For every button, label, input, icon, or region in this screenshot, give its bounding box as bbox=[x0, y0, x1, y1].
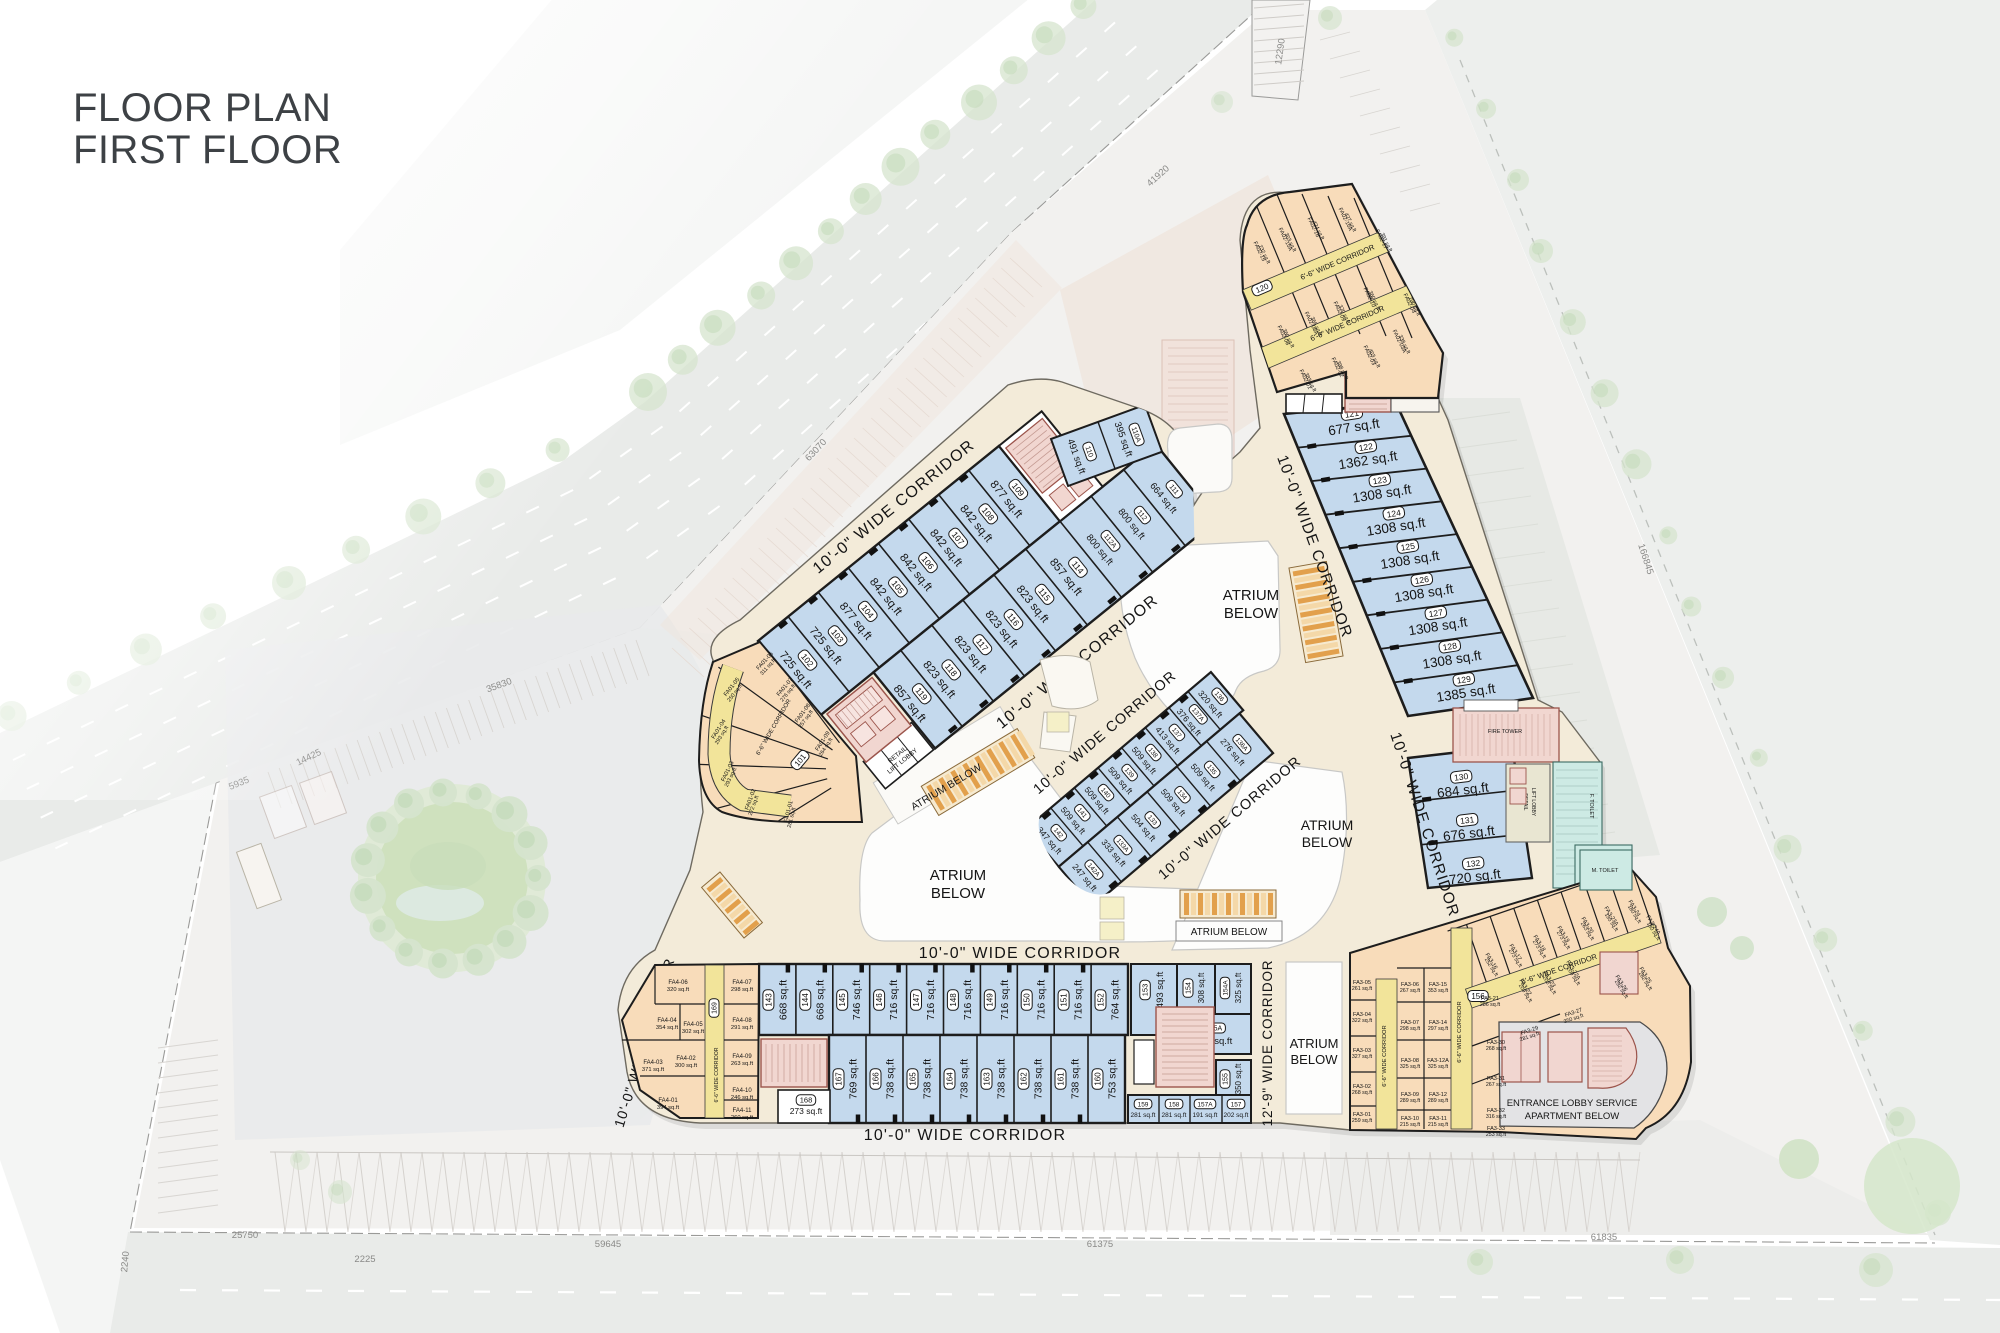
svg-text:289 sq.ft: 289 sq.ft bbox=[1428, 1098, 1449, 1104]
svg-text:FA4-03: FA4-03 bbox=[643, 1060, 663, 1066]
svg-text:267 sq.ft: 267 sq.ft bbox=[1486, 1082, 1507, 1088]
svg-text:493 sq.ft: 493 sq.ft bbox=[1155, 971, 1166, 1008]
svg-text:169: 169 bbox=[712, 1002, 719, 1014]
svg-text:6'-6" WIDE CORRIDOR: 6'-6" WIDE CORRIDOR bbox=[1382, 1025, 1388, 1086]
svg-text:371 sq.ft: 371 sq.ft bbox=[642, 1067, 665, 1073]
svg-text:10'-0" WIDE CORRIDOR: 10'-0" WIDE CORRIDOR bbox=[919, 945, 1122, 962]
svg-text:FA4-04: FA4-04 bbox=[657, 1018, 677, 1024]
svg-text:2240: 2240 bbox=[119, 1251, 132, 1273]
svg-text:FA4-08: FA4-08 bbox=[732, 1018, 752, 1024]
svg-text:325 sq.ft: 325 sq.ft bbox=[1400, 1064, 1421, 1070]
svg-text:161: 161 bbox=[1056, 1072, 1065, 1086]
svg-text:164: 164 bbox=[945, 1072, 954, 1086]
svg-text:668 sq.ft: 668 sq.ft bbox=[814, 980, 826, 1020]
svg-text:738 sq.ft: 738 sq.ft bbox=[885, 1059, 897, 1099]
svg-text:716 sq.ft: 716 sq.ft bbox=[888, 980, 900, 1020]
svg-text:215 sq.ft: 215 sq.ft bbox=[1400, 1122, 1421, 1128]
svg-text:716 sq.ft: 716 sq.ft bbox=[925, 980, 937, 1020]
svg-text:268 sq.ft: 268 sq.ft bbox=[1352, 1090, 1373, 1096]
svg-text:298 sq.ft: 298 sq.ft bbox=[1400, 1026, 1421, 1032]
svg-text:ATRIUM: ATRIUM bbox=[1223, 587, 1279, 604]
svg-text:FIRST FLOOR: FIRST FLOOR bbox=[73, 128, 342, 172]
svg-text:FA4-07: FA4-07 bbox=[732, 980, 752, 986]
svg-text:152: 152 bbox=[1096, 993, 1105, 1007]
svg-text:738 sq.ft: 738 sq.ft bbox=[1070, 1059, 1082, 1099]
svg-text:6'-6" WIDE CORRIDOR: 6'-6" WIDE CORRIDOR bbox=[1457, 1001, 1463, 1062]
svg-text:286 sq.ft: 286 sq.ft bbox=[1480, 1002, 1501, 1008]
svg-text:130: 130 bbox=[1454, 771, 1470, 783]
svg-text:157A: 157A bbox=[1197, 1101, 1213, 1108]
svg-text:764 sq.ft: 764 sq.ft bbox=[1110, 980, 1122, 1020]
svg-text:668 sq.ft: 668 sq.ft bbox=[777, 980, 789, 1020]
svg-text:FA4-10: FA4-10 bbox=[732, 1088, 752, 1094]
svg-text:155: 155 bbox=[1223, 1073, 1230, 1085]
svg-text:753 sq.ft: 753 sq.ft bbox=[1107, 1059, 1119, 1099]
svg-text:159: 159 bbox=[1138, 1101, 1149, 1108]
svg-text:BELOW: BELOW bbox=[1224, 605, 1279, 622]
svg-text:BELOW: BELOW bbox=[931, 885, 986, 902]
svg-text:253 sq.ft: 253 sq.ft bbox=[1486, 1132, 1507, 1138]
svg-text:738 sq.ft: 738 sq.ft bbox=[996, 1059, 1008, 1099]
svg-text:145: 145 bbox=[838, 993, 847, 1007]
svg-text:25750: 25750 bbox=[232, 1230, 258, 1241]
svg-text:325 sq.ft: 325 sq.ft bbox=[1234, 972, 1243, 1003]
svg-text:263 sq.ft: 263 sq.ft bbox=[731, 1061, 754, 1067]
svg-text:273 sq.ft: 273 sq.ft bbox=[790, 1106, 823, 1116]
svg-text:FA4-05: FA4-05 bbox=[683, 1022, 703, 1028]
svg-text:FA4-02: FA4-02 bbox=[676, 1056, 696, 1062]
svg-text:ATRIUM: ATRIUM bbox=[1301, 817, 1354, 833]
svg-text:6'-6" WIDE CORRIDOR: 6'-6" WIDE CORRIDOR bbox=[714, 1047, 720, 1102]
svg-text:325 sq.ft: 325 sq.ft bbox=[1428, 1064, 1449, 1070]
svg-text:260 sq.ft: 260 sq.ft bbox=[731, 1115, 754, 1121]
svg-text:APARTMENT BELOW: APARTMENT BELOW bbox=[1525, 1111, 1620, 1122]
svg-text:167: 167 bbox=[834, 1072, 843, 1086]
svg-text:354 sq.ft: 354 sq.ft bbox=[656, 1025, 679, 1031]
svg-text:268 sq.ft: 268 sq.ft bbox=[1486, 1046, 1507, 1052]
svg-text:281 sq.ft: 281 sq.ft bbox=[1162, 1112, 1187, 1119]
svg-text:148: 148 bbox=[949, 993, 958, 1007]
svg-text:716 sq.ft: 716 sq.ft bbox=[962, 980, 974, 1020]
svg-text:BELOW: BELOW bbox=[1291, 1052, 1339, 1067]
svg-text:61375: 61375 bbox=[1087, 1239, 1113, 1250]
svg-text:191 sq.ft: 191 sq.ft bbox=[1193, 1112, 1218, 1119]
svg-text:160: 160 bbox=[1093, 1072, 1102, 1086]
svg-text:291 sq.ft: 291 sq.ft bbox=[731, 1025, 754, 1031]
svg-text:FLOOR PLAN: FLOOR PLAN bbox=[73, 86, 331, 130]
svg-text:FA4-06: FA4-06 bbox=[668, 980, 688, 986]
svg-text:769 sq.ft: 769 sq.ft bbox=[848, 1059, 860, 1099]
svg-text:259 sq.ft: 259 sq.ft bbox=[1352, 1118, 1373, 1124]
svg-text:316 sq.ft: 316 sq.ft bbox=[1486, 1114, 1507, 1120]
svg-text:261 sq.ft: 261 sq.ft bbox=[1352, 986, 1373, 992]
svg-text:166: 166 bbox=[871, 1072, 880, 1086]
svg-text:131: 131 bbox=[1460, 814, 1476, 826]
svg-text:149: 149 bbox=[986, 993, 995, 1007]
svg-text:ATRIUM: ATRIUM bbox=[1290, 1036, 1339, 1051]
svg-text:215 sq.ft: 215 sq.ft bbox=[1428, 1122, 1449, 1128]
svg-text:143: 143 bbox=[764, 993, 773, 1007]
svg-text:300 sq.ft: 300 sq.ft bbox=[675, 1063, 698, 1069]
svg-text:132: 132 bbox=[1466, 858, 1482, 870]
svg-text:716 sq.ft: 716 sq.ft bbox=[999, 980, 1011, 1020]
svg-text:350 sq.ft: 350 sq.ft bbox=[1234, 1063, 1243, 1094]
svg-text:FA4-01: FA4-01 bbox=[658, 1098, 678, 1104]
svg-text:59645: 59645 bbox=[595, 1239, 621, 1250]
svg-text:FA4-11: FA4-11 bbox=[733, 1108, 753, 1114]
svg-text:M. TOILET: M. TOILET bbox=[1592, 868, 1619, 874]
svg-text:150: 150 bbox=[1023, 993, 1032, 1007]
svg-text:162: 162 bbox=[1019, 1072, 1028, 1086]
svg-text:61835: 61835 bbox=[1591, 1232, 1617, 1243]
svg-text:308 sq.ft: 308 sq.ft bbox=[1197, 972, 1206, 1003]
svg-text:153: 153 bbox=[1141, 984, 1150, 997]
svg-text:267 sq.ft: 267 sq.ft bbox=[1400, 988, 1421, 994]
svg-text:738 sq.ft: 738 sq.ft bbox=[959, 1059, 971, 1099]
svg-text:12'-9" WIDE CORRIDOR: 12'-9" WIDE CORRIDOR bbox=[1260, 960, 1275, 1127]
svg-text:163: 163 bbox=[982, 1072, 991, 1086]
svg-text:157: 157 bbox=[1231, 1101, 1242, 1108]
svg-text:353 sq.ft: 353 sq.ft bbox=[1428, 988, 1449, 994]
svg-text:ATRIUM BELOW: ATRIUM BELOW bbox=[1191, 927, 1268, 938]
svg-text:154: 154 bbox=[1186, 982, 1193, 994]
svg-text:716 sq.ft: 716 sq.ft bbox=[1073, 980, 1085, 1020]
svg-text:158: 158 bbox=[1169, 1101, 1180, 1108]
svg-text:10'-0" WIDE CORRIDOR: 10'-0" WIDE CORRIDOR bbox=[864, 1127, 1067, 1144]
svg-text:146: 146 bbox=[875, 993, 884, 1007]
svg-text:F. TOILET: F. TOILET bbox=[1588, 794, 1594, 820]
svg-text:716 sq.ft: 716 sq.ft bbox=[1036, 980, 1048, 1020]
svg-text:322 sq.ft: 322 sq.ft bbox=[1352, 1018, 1373, 1024]
svg-text:147: 147 bbox=[912, 993, 921, 1007]
svg-text:281 sq.ft: 281 sq.ft bbox=[1131, 1112, 1156, 1119]
svg-text:ENTRANCE LOBBY SERVICE: ENTRANCE LOBBY SERVICE bbox=[1507, 1098, 1638, 1109]
svg-text:BELOW: BELOW bbox=[1302, 834, 1353, 850]
svg-text:FIRE TOWER: FIRE TOWER bbox=[1488, 729, 1522, 735]
svg-text:302 sq.ft: 302 sq.ft bbox=[682, 1029, 705, 1035]
svg-text:202 sq.ft: 202 sq.ft bbox=[1224, 1112, 1249, 1119]
svg-text:LIFT LOBBY: LIFT LOBBY bbox=[1530, 788, 1536, 817]
svg-text:FA4-09: FA4-09 bbox=[732, 1054, 752, 1060]
svg-text:151: 151 bbox=[1060, 993, 1069, 1007]
svg-text:394 sq.ft: 394 sq.ft bbox=[657, 1105, 680, 1111]
svg-text:738 sq.ft: 738 sq.ft bbox=[1033, 1059, 1045, 1099]
svg-text:298 sq.ft: 298 sq.ft bbox=[731, 987, 754, 993]
svg-text:289 sq.ft: 289 sq.ft bbox=[1400, 1098, 1421, 1104]
svg-text:165: 165 bbox=[908, 1072, 917, 1086]
svg-text:154A: 154A bbox=[1222, 980, 1229, 996]
svg-text:2225: 2225 bbox=[354, 1254, 375, 1265]
svg-text:738 sq.ft: 738 sq.ft bbox=[922, 1059, 934, 1099]
svg-text:297 sq.ft: 297 sq.ft bbox=[1428, 1026, 1449, 1032]
svg-text:320 sq.ft: 320 sq.ft bbox=[667, 987, 690, 993]
svg-text:746 sq.ft: 746 sq.ft bbox=[851, 980, 863, 1020]
svg-text:ATRIUM: ATRIUM bbox=[930, 867, 986, 884]
svg-text:144: 144 bbox=[801, 993, 810, 1007]
svg-text:168: 168 bbox=[800, 1096, 813, 1105]
svg-text:327 sq.ft: 327 sq.ft bbox=[1352, 1054, 1373, 1060]
